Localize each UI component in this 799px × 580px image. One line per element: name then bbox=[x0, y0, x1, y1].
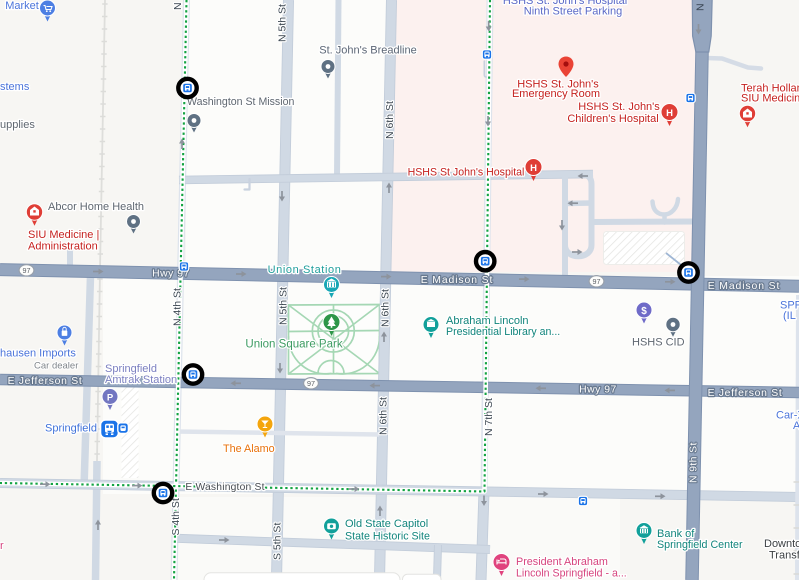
svg-text:E Madison St: E Madison St bbox=[421, 275, 494, 286]
svg-text:S 4th St: S 4th St bbox=[170, 498, 182, 535]
svg-text:stems: stems bbox=[0, 81, 30, 93]
svg-text:Old State Capitol: Old State Capitol bbox=[345, 518, 428, 530]
svg-text:Downtow: Downtow bbox=[764, 538, 799, 550]
svg-text:Hwy 97: Hwy 97 bbox=[579, 384, 617, 395]
svg-text:N 4th St: N 4th St bbox=[172, 288, 184, 326]
svg-text:(IL: (IL bbox=[783, 310, 796, 322]
svg-text:HSHS St John's Hospital: HSHS St John's Hospital bbox=[408, 167, 525, 179]
svg-text:Transfe: Transfe bbox=[769, 550, 799, 562]
svg-text:N 5th St: N 5th St bbox=[278, 287, 290, 325]
svg-text:N 5th St: N 5th St bbox=[277, 4, 289, 42]
svg-text:St. John's Breadline: St. John's Breadline bbox=[319, 45, 417, 57]
svg-text:N 9th St: N 9th St bbox=[689, 442, 700, 483]
svg-text:N 7th St: N 7th St bbox=[483, 398, 495, 436]
svg-text:Market: Market bbox=[5, 0, 39, 12]
svg-text:E Washington St: E Washington St bbox=[185, 482, 264, 493]
svg-text:President Abraham: President Abraham bbox=[516, 556, 608, 568]
svg-text:Abcor Home Health: Abcor Home Health bbox=[48, 201, 144, 213]
svg-text:Union Square Park: Union Square Park bbox=[245, 339, 342, 351]
svg-text:97: 97 bbox=[23, 266, 31, 275]
svg-text:P: P bbox=[107, 393, 114, 404]
svg-text:SIU Medicin: SIU Medicin bbox=[741, 93, 799, 105]
svg-text:Union Station: Union Station bbox=[268, 264, 342, 276]
svg-text:H: H bbox=[530, 163, 537, 174]
svg-text:97: 97 bbox=[307, 379, 315, 388]
svg-text:HSHS CID: HSHS CID bbox=[632, 337, 685, 349]
svg-text:r: r bbox=[0, 540, 4, 552]
svg-text:S 5th St: S 5th St bbox=[272, 523, 284, 560]
svg-text:N 9th St: N 9th St bbox=[695, 0, 707, 11]
svg-text:State Historic Site: State Historic Site bbox=[345, 531, 430, 543]
svg-text:N 6th St: N 6th St bbox=[380, 289, 392, 327]
svg-text:The Alamo: The Alamo bbox=[223, 443, 275, 455]
svg-text:E Jefferson St: E Jefferson St bbox=[8, 376, 83, 387]
svg-text:A: A bbox=[793, 420, 799, 432]
svg-text:upplies: upplies bbox=[0, 119, 35, 131]
svg-text:N 6th St: N 6th St bbox=[384, 101, 396, 139]
svg-text:Ninth Street Parking: Ninth Street Parking bbox=[524, 6, 622, 18]
svg-text:Administration: Administration bbox=[28, 241, 98, 253]
svg-text:N 6th St: N 6th St bbox=[378, 397, 390, 435]
svg-text:Washington St Mission: Washington St Mission bbox=[187, 96, 294, 108]
svg-text:Lincoln Springfield - a...: Lincoln Springfield - a... bbox=[516, 568, 627, 580]
svg-text:hausen Imports: hausen Imports bbox=[0, 348, 76, 360]
svg-text:Children's Hospital: Children's Hospital bbox=[567, 113, 658, 125]
svg-text:Springfield Center: Springfield Center bbox=[657, 539, 743, 551]
svg-text:Emergency Room: Emergency Room bbox=[512, 88, 600, 100]
svg-text:E Madison St: E Madison St bbox=[708, 281, 781, 292]
svg-text:N 4th St: N 4th St bbox=[172, 0, 184, 10]
svg-text:97: 97 bbox=[593, 277, 601, 286]
svg-text:Car dealer: Car dealer bbox=[34, 361, 78, 372]
svg-text:Springfield: Springfield bbox=[45, 423, 97, 435]
svg-text:E Jefferson St: E Jefferson St bbox=[708, 388, 783, 399]
svg-text:Amtrak Station: Amtrak Station bbox=[105, 374, 177, 386]
svg-text:HSHS St. John's: HSHS St. John's bbox=[578, 101, 660, 113]
svg-text:SIU Medicine |: SIU Medicine | bbox=[28, 229, 99, 241]
svg-text:$: $ bbox=[641, 306, 647, 317]
svg-text:H: H bbox=[666, 108, 673, 119]
svg-text:Presidential Library an...: Presidential Library an... bbox=[446, 326, 560, 338]
